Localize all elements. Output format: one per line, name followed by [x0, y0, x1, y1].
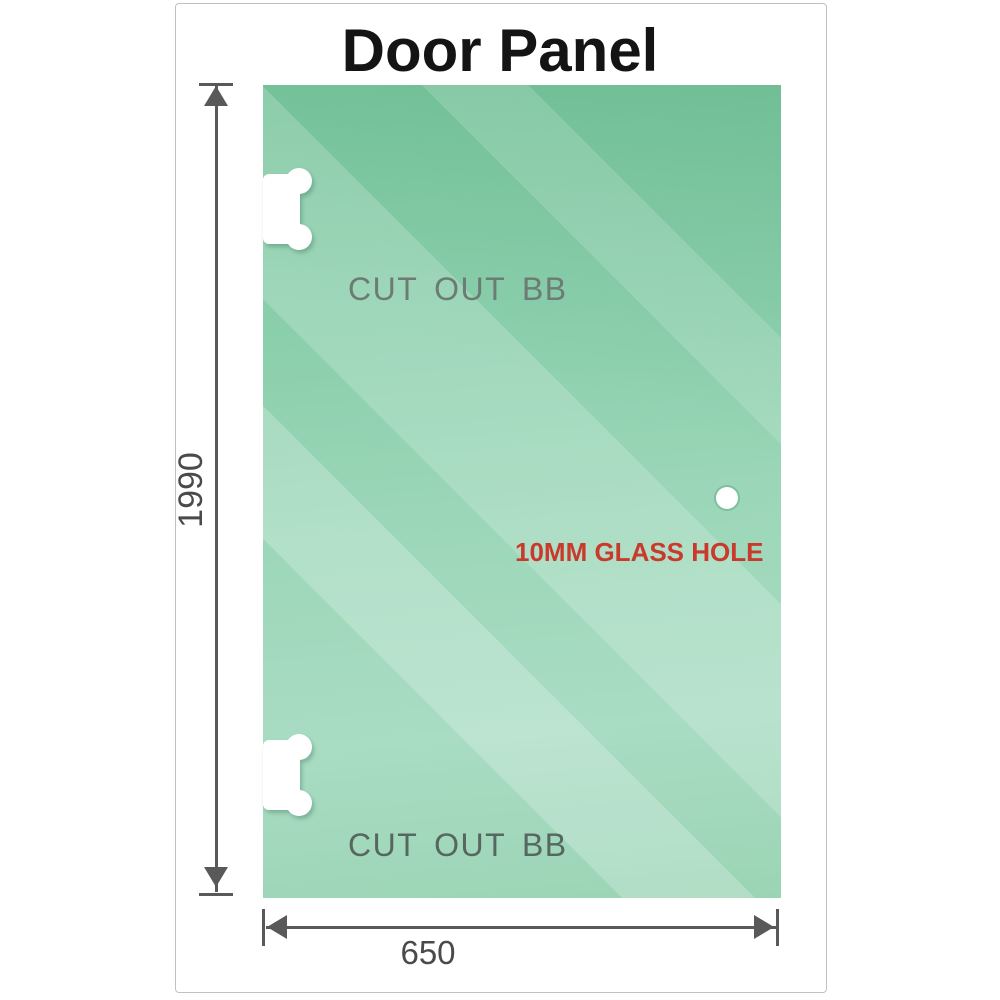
glass-panel: CUT OUT BB CUT OUT BB 10MM GLASS HOLE	[263, 85, 781, 898]
arrow-down-icon	[204, 867, 228, 887]
width-dimension-left-tick	[262, 909, 265, 946]
height-dimension-bottom-cap	[199, 893, 233, 896]
glass-hole	[716, 487, 738, 509]
cutout-top-label: CUT OUT BB	[348, 271, 568, 308]
width-dimension-label: 650	[358, 934, 498, 972]
cutout-bb-top-shape	[263, 167, 313, 251]
width-dimension-line	[266, 926, 776, 929]
arrow-left-icon	[267, 915, 287, 939]
width-dimension-right-tick	[776, 909, 779, 946]
arrow-up-icon	[204, 86, 228, 106]
height-dimension-label: 1990	[171, 420, 211, 560]
diagram-title: Door Panel	[175, 16, 825, 85]
cutout-bb-bottom-shape	[263, 733, 313, 817]
height-dimension-line	[215, 86, 218, 892]
arrow-right-icon	[754, 915, 774, 939]
glass-hole-label: 10MM GLASS HOLE	[515, 537, 763, 568]
cutout-bottom-label: CUT OUT BB	[348, 827, 568, 864]
door-panel-diagram: Door Panel CUT OUT BB CUT OUT BB 10MM GL…	[0, 0, 1000, 1000]
